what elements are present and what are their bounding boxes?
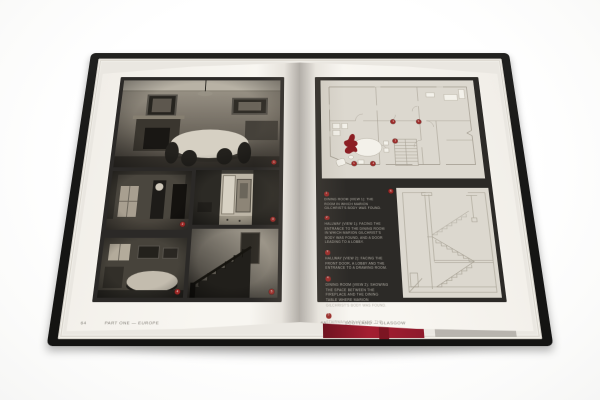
floor-plan-drawing (320, 80, 485, 178)
photo-dining-room-view-2: 4 (97, 238, 187, 298)
page-number: 64 (80, 320, 86, 326)
caption-item: 4 DINING ROOM (VIEW 2): SHOWING THE SPAC… (325, 276, 390, 308)
plan-marker-icon: 2 (391, 120, 396, 124)
floor-plan: 1 2 3 4 5 (320, 80, 485, 178)
photo-marker-icon: 5 (269, 289, 274, 294)
left-page: 1 2 (66, 63, 300, 332)
hallway-photo-art (105, 171, 192, 230)
open-book: 1 2 (47, 53, 554, 346)
photo-hallway-view-1: 2 (105, 171, 192, 230)
photo-hallway-view-2: 3 (192, 170, 279, 225)
photo-dining-room-view-1: 1 (113, 80, 280, 167)
photo-plate: 1 2 (92, 77, 284, 302)
caption-number-icon: 5 (326, 313, 331, 318)
caption-number-icon: 2 (324, 216, 329, 220)
caption-text: HALLWAY (VIEW 2): FACING THE FRONT DOOR,… (325, 256, 389, 271)
photo-marker-icon: 1 (271, 160, 276, 165)
plan-plate: 1 2 3 4 5 1 DINING ROOM (VIEW 1): THE RO… (315, 77, 507, 302)
caption-text: HALLWAY (VIEW 1): FACING THE ENTRANCE TO… (325, 222, 388, 245)
dining-room-photo-art (113, 80, 280, 167)
caption-item: 1 DINING ROOM (VIEW 1): THE ROOM IN WHIC… (324, 192, 385, 211)
running-head: PART ONE — EUROPE (104, 320, 159, 326)
right-page: 1 2 3 4 5 1 DINING ROOM (VIEW 1): THE RO… (300, 63, 534, 332)
photo-stairway-and-landing: 5 (187, 229, 278, 298)
billiard-room-photo-art (97, 238, 187, 298)
running-head: SCOTLAND — GLASGOW (345, 320, 406, 326)
caption-number-icon: 4 (325, 276, 330, 281)
section-marker-icon: 6 (388, 189, 393, 194)
plan-marker-icon: 4 (371, 162, 376, 167)
staircase-photo-art (187, 229, 278, 298)
plan-marker-icon: 3 (393, 138, 398, 142)
plan-marker-icon: 1 (351, 162, 356, 167)
staircase-section-drawing (396, 188, 502, 298)
section-drawing (396, 188, 502, 298)
caption-item: 3 HALLWAY (VIEW 2): FACING THE FRONT DOO… (325, 250, 389, 271)
caption-number-icon: 1 (324, 192, 329, 196)
entrance-hall-photo-art (192, 170, 279, 225)
caption-item: 2 HALLWAY (VIEW 1): FACING THE ENTRANCE … (324, 216, 387, 245)
photo-backdrop: 1 2 (0, 0, 600, 400)
caption-text: DINING ROOM (VIEW 1): THE ROOM IN WHICH … (324, 197, 385, 210)
caption-number-icon: 3 (325, 250, 330, 255)
plan-marker-icon: 5 (416, 120, 421, 124)
photo-marker-icon: 3 (270, 217, 275, 222)
caption-text: DINING ROOM (VIEW 2): SHOWING THE SPACE … (326, 283, 391, 308)
